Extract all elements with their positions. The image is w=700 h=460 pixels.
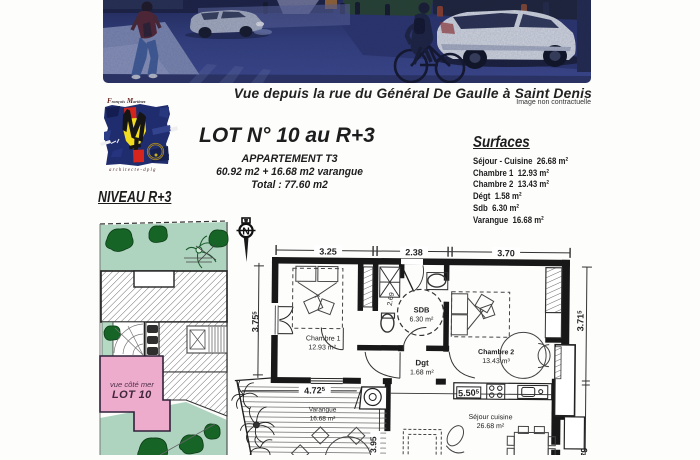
svg-text:3.25: 3.25	[319, 246, 337, 256]
svg-text:1.68 m²: 1.68 m²	[410, 369, 434, 376]
svg-text:3.70: 3.70	[497, 248, 515, 258]
svg-text:3.715: 3.715	[575, 310, 585, 332]
svg-text:6.30 m²: 6.30 m²	[410, 316, 434, 323]
svg-text:2.69: 2.69	[387, 292, 396, 307]
svg-text:Chambre 2: Chambre 2	[478, 349, 514, 356]
svg-text:François Martinez: François Martinez	[107, 97, 146, 105]
svg-text:2.38: 2.38	[405, 247, 423, 257]
svg-text:architecte-dplg: architecte-dplg	[109, 168, 157, 173]
svg-text:26.68 m²: 26.68 m²	[477, 423, 505, 430]
svg-text:N: N	[242, 226, 250, 238]
svg-text:13.43 m³: 13.43 m³	[482, 358, 510, 365]
svg-text:Dgt: Dgt	[415, 358, 429, 367]
svg-text:LOT 10: LOT 10	[112, 389, 152, 401]
svg-text:Séjour cuisine: Séjour cuisine	[468, 414, 512, 421]
svg-text:Varangue: Varangue	[309, 406, 337, 413]
svg-text:vue côté mer: vue côté mer	[110, 380, 154, 389]
svg-text:16.68 m²: 16.68 m²	[310, 415, 337, 422]
svg-text:12.93 m²: 12.93 m²	[308, 344, 336, 351]
svg-text:SDB: SDB	[414, 305, 431, 314]
